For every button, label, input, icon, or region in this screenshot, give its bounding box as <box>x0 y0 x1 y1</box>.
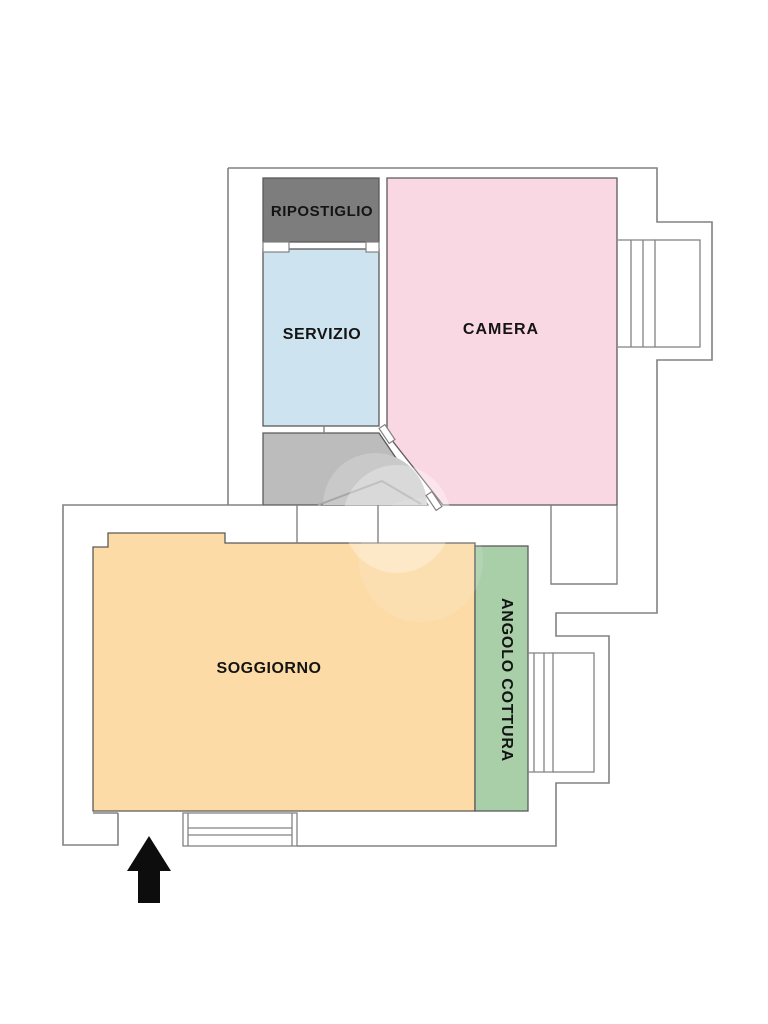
window-soggiorno <box>183 813 297 846</box>
window-angolo-cottura <box>528 653 594 772</box>
ripostiglio-door-stub-left <box>263 242 289 252</box>
label-angolo-cottura: ANGOLO COTTURA <box>498 598 515 762</box>
label-camera: CAMERA <box>463 321 539 338</box>
room-camera <box>387 178 617 505</box>
label-soggiorno: SOGGIORNO <box>217 660 322 677</box>
ripostiglio-door-stub-right <box>366 242 379 252</box>
wall-block-below-camera <box>551 505 617 584</box>
label-servizio: SERVIZIO <box>283 326 361 343</box>
label-ripostiglio: RIPOSTIGLIO <box>271 203 373 220</box>
floor-plan-page: RIPOSTIGLIO SERVIZIO CAMERA SOGGIORNO AN… <box>0 0 768 1024</box>
window-camera <box>618 240 700 347</box>
floor-plan-canvas: RIPOSTIGLIO SERVIZIO CAMERA SOGGIORNO AN… <box>0 0 768 1024</box>
entrance-arrow-icon <box>127 836 171 903</box>
